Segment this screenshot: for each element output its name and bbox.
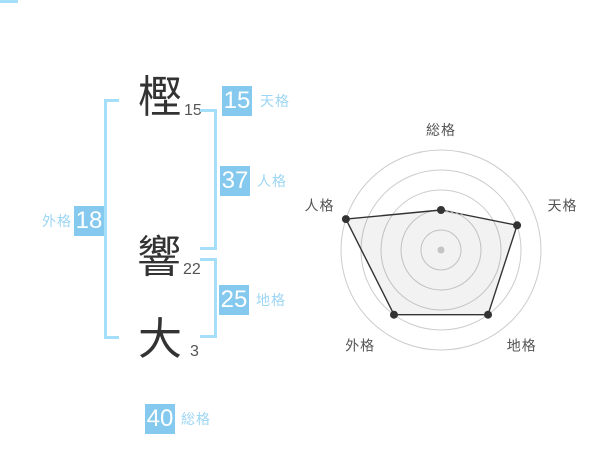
gaikaku-badge: 18: [74, 206, 104, 236]
soukaku-badge: 40: [145, 404, 175, 434]
name-fortune-panel: 樫 15 響 22 大 3 15 天格 37 人格 25 地格 外格 18 40…: [0, 0, 600, 470]
kanji-given-char-1: 響: [136, 236, 182, 280]
radar-vertex-dot: [437, 206, 445, 214]
jinkaku-bracket: [200, 109, 217, 250]
tenkaku-badge: 15: [222, 86, 252, 116]
radar-axis-label: 総格: [426, 122, 456, 138]
radar-axis-label: 外格: [345, 338, 375, 354]
radar-axis-label: 天格: [548, 197, 578, 213]
chikaku-badge: 25: [219, 285, 249, 315]
jinkaku-label: 人格: [257, 174, 287, 188]
chikaku-label: 地格: [256, 293, 286, 307]
gaikaku-bracket: [104, 99, 119, 339]
radar-vertex-dot: [342, 215, 350, 223]
kanji-given-char-2: 大: [137, 318, 183, 362]
soukaku-label: 総格: [181, 412, 211, 426]
chikaku-bracket: [200, 258, 217, 338]
jinkaku-badge: 37: [220, 166, 250, 196]
radar-axis-label: 地格: [507, 338, 537, 354]
radar-vertex-dot: [390, 311, 398, 319]
stroke-count-given-2: 3: [190, 344, 199, 360]
radar-data-polygon: [346, 210, 517, 315]
stroke-count-given-1: 22: [183, 262, 201, 278]
tenkaku-connector-line: [0, 0, 18, 3]
gaikaku-label: 外格: [42, 214, 72, 228]
radar-chart: 総格天格地格外格人格: [300, 110, 590, 360]
kanji-surname-char: 樫: [137, 76, 183, 120]
tenkaku-label: 天格: [260, 94, 290, 108]
radar-center-dot: [438, 247, 445, 254]
radar-vertex-dot: [513, 221, 521, 229]
radar-axis-label: 人格: [305, 197, 335, 213]
radar-vertex-dot: [484, 311, 492, 319]
